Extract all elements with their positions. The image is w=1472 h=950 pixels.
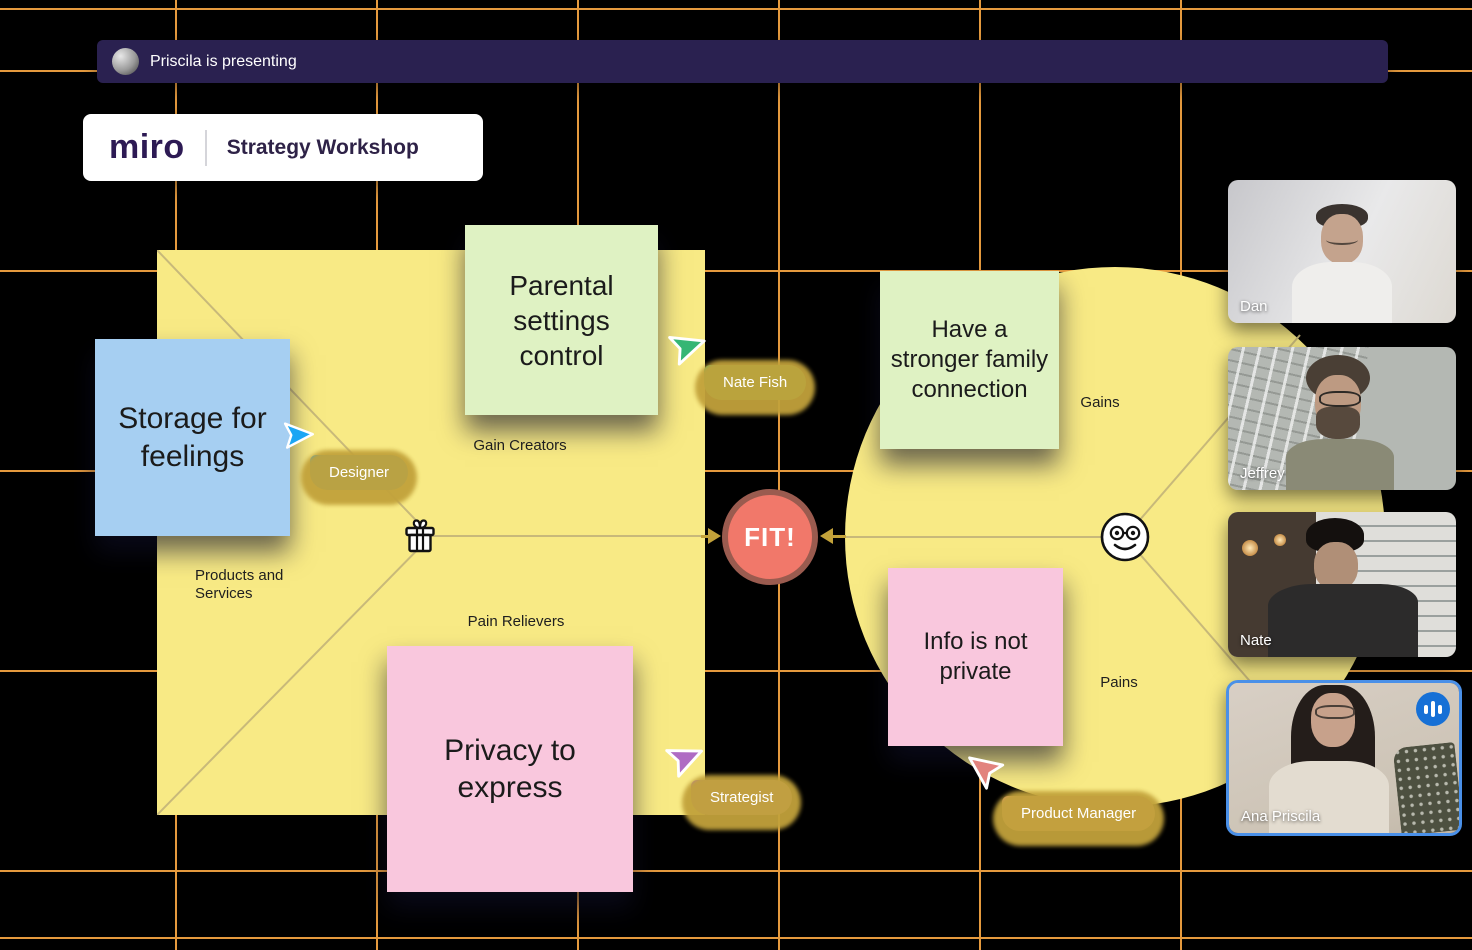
audio-bar <box>1438 705 1442 714</box>
participant-glasses <box>1326 235 1358 245</box>
grid-line <box>0 870 1472 872</box>
workshop-logo-card: miro Strategy Workshop <box>83 114 483 181</box>
sticky-note-text: Have a stronger family connection <box>888 315 1051 405</box>
gain-creators-label: Gain Creators <box>420 437 620 455</box>
smiley-glasses-icon <box>1098 510 1152 564</box>
participant-name: Dan <box>1240 298 1268 315</box>
participant-body <box>1286 439 1394 490</box>
participant-glasses <box>1315 705 1355 719</box>
fit-circle[interactable]: FIT! <box>722 489 818 585</box>
warm-light <box>1274 534 1286 546</box>
participant-body <box>1292 262 1392 323</box>
sticky-note[interactable]: Info is not private <box>888 568 1063 746</box>
sticky-note-text: Parental settings control <box>473 268 650 373</box>
cursor-name: Strategist <box>710 789 773 806</box>
video-tile-ana-priscila-speaking[interactable]: Ana Priscila <box>1226 680 1462 836</box>
sticky-note[interactable]: Parental settings control <box>465 225 658 415</box>
speaking-audio-indicator[interactable] <box>1416 692 1450 726</box>
collaborator-cursor-icon <box>965 749 1011 795</box>
sticky-note[interactable]: Have a stronger family connection <box>880 271 1059 449</box>
presenting-banner: Priscila is presenting <box>97 40 1388 83</box>
sticky-note[interactable]: Storage for feelings <box>95 339 290 536</box>
participant-glasses <box>1319 391 1361 407</box>
pains-label: Pains <box>1069 674 1169 692</box>
audio-bar <box>1431 701 1435 717</box>
grid-line <box>0 8 1472 10</box>
participant-beard <box>1316 407 1360 439</box>
cursor-name-pill: Designer <box>310 455 408 490</box>
sticky-note-text: Privacy to express <box>395 732 625 807</box>
participant-face <box>1314 542 1358 590</box>
presenting-text: Priscila is presenting <box>150 53 297 71</box>
cursor-name: Designer <box>329 464 389 481</box>
fit-arrow-line-right <box>833 535 846 538</box>
sticky-note-text: Storage for feelings <box>103 400 282 475</box>
sticky-note-text: Info is not private <box>896 627 1055 687</box>
patterned-pillow <box>1393 742 1462 836</box>
video-tile-nate[interactable]: Nate <box>1228 512 1456 657</box>
participant-name: Ana Priscila <box>1241 808 1320 825</box>
warm-light <box>1242 540 1258 556</box>
audio-bar <box>1424 705 1428 714</box>
participant-name: Nate <box>1240 632 1272 649</box>
grid-line <box>0 937 1472 939</box>
cursor-name: Nate Fish <box>723 374 787 391</box>
cursor-name-pill: Product Manager <box>1002 796 1155 831</box>
workshop-title: Strategy Workshop <box>227 136 419 160</box>
video-tile-jeffrey[interactable]: Jeffrey <box>1228 347 1456 490</box>
gift-icon <box>400 517 440 557</box>
sticky-note[interactable]: Privacy to express <box>387 646 633 892</box>
participant-face <box>1311 693 1355 747</box>
pain-relievers-label: Pain Relievers <box>416 613 616 631</box>
participant-name: Jeffrey <box>1240 465 1285 482</box>
cursor-name: Product Manager <box>1021 805 1136 822</box>
products-services-label: Products and Services <box>195 567 307 603</box>
presenter-avatar <box>112 48 139 75</box>
miro-logo: miro <box>109 128 185 167</box>
fit-arrow-left <box>708 528 721 544</box>
logo-divider <box>205 130 207 166</box>
fit-arrow-right <box>820 528 833 544</box>
cursor-name-pill: Nate Fish <box>704 365 806 400</box>
video-tile-dan[interactable]: Dan <box>1228 180 1456 323</box>
gains-label: Gains <box>1050 394 1150 412</box>
miro-board: Gain Creators Products and Services Pain… <box>0 0 1472 950</box>
participant-body <box>1268 584 1418 657</box>
cursor-name-pill: Strategist <box>691 780 792 815</box>
